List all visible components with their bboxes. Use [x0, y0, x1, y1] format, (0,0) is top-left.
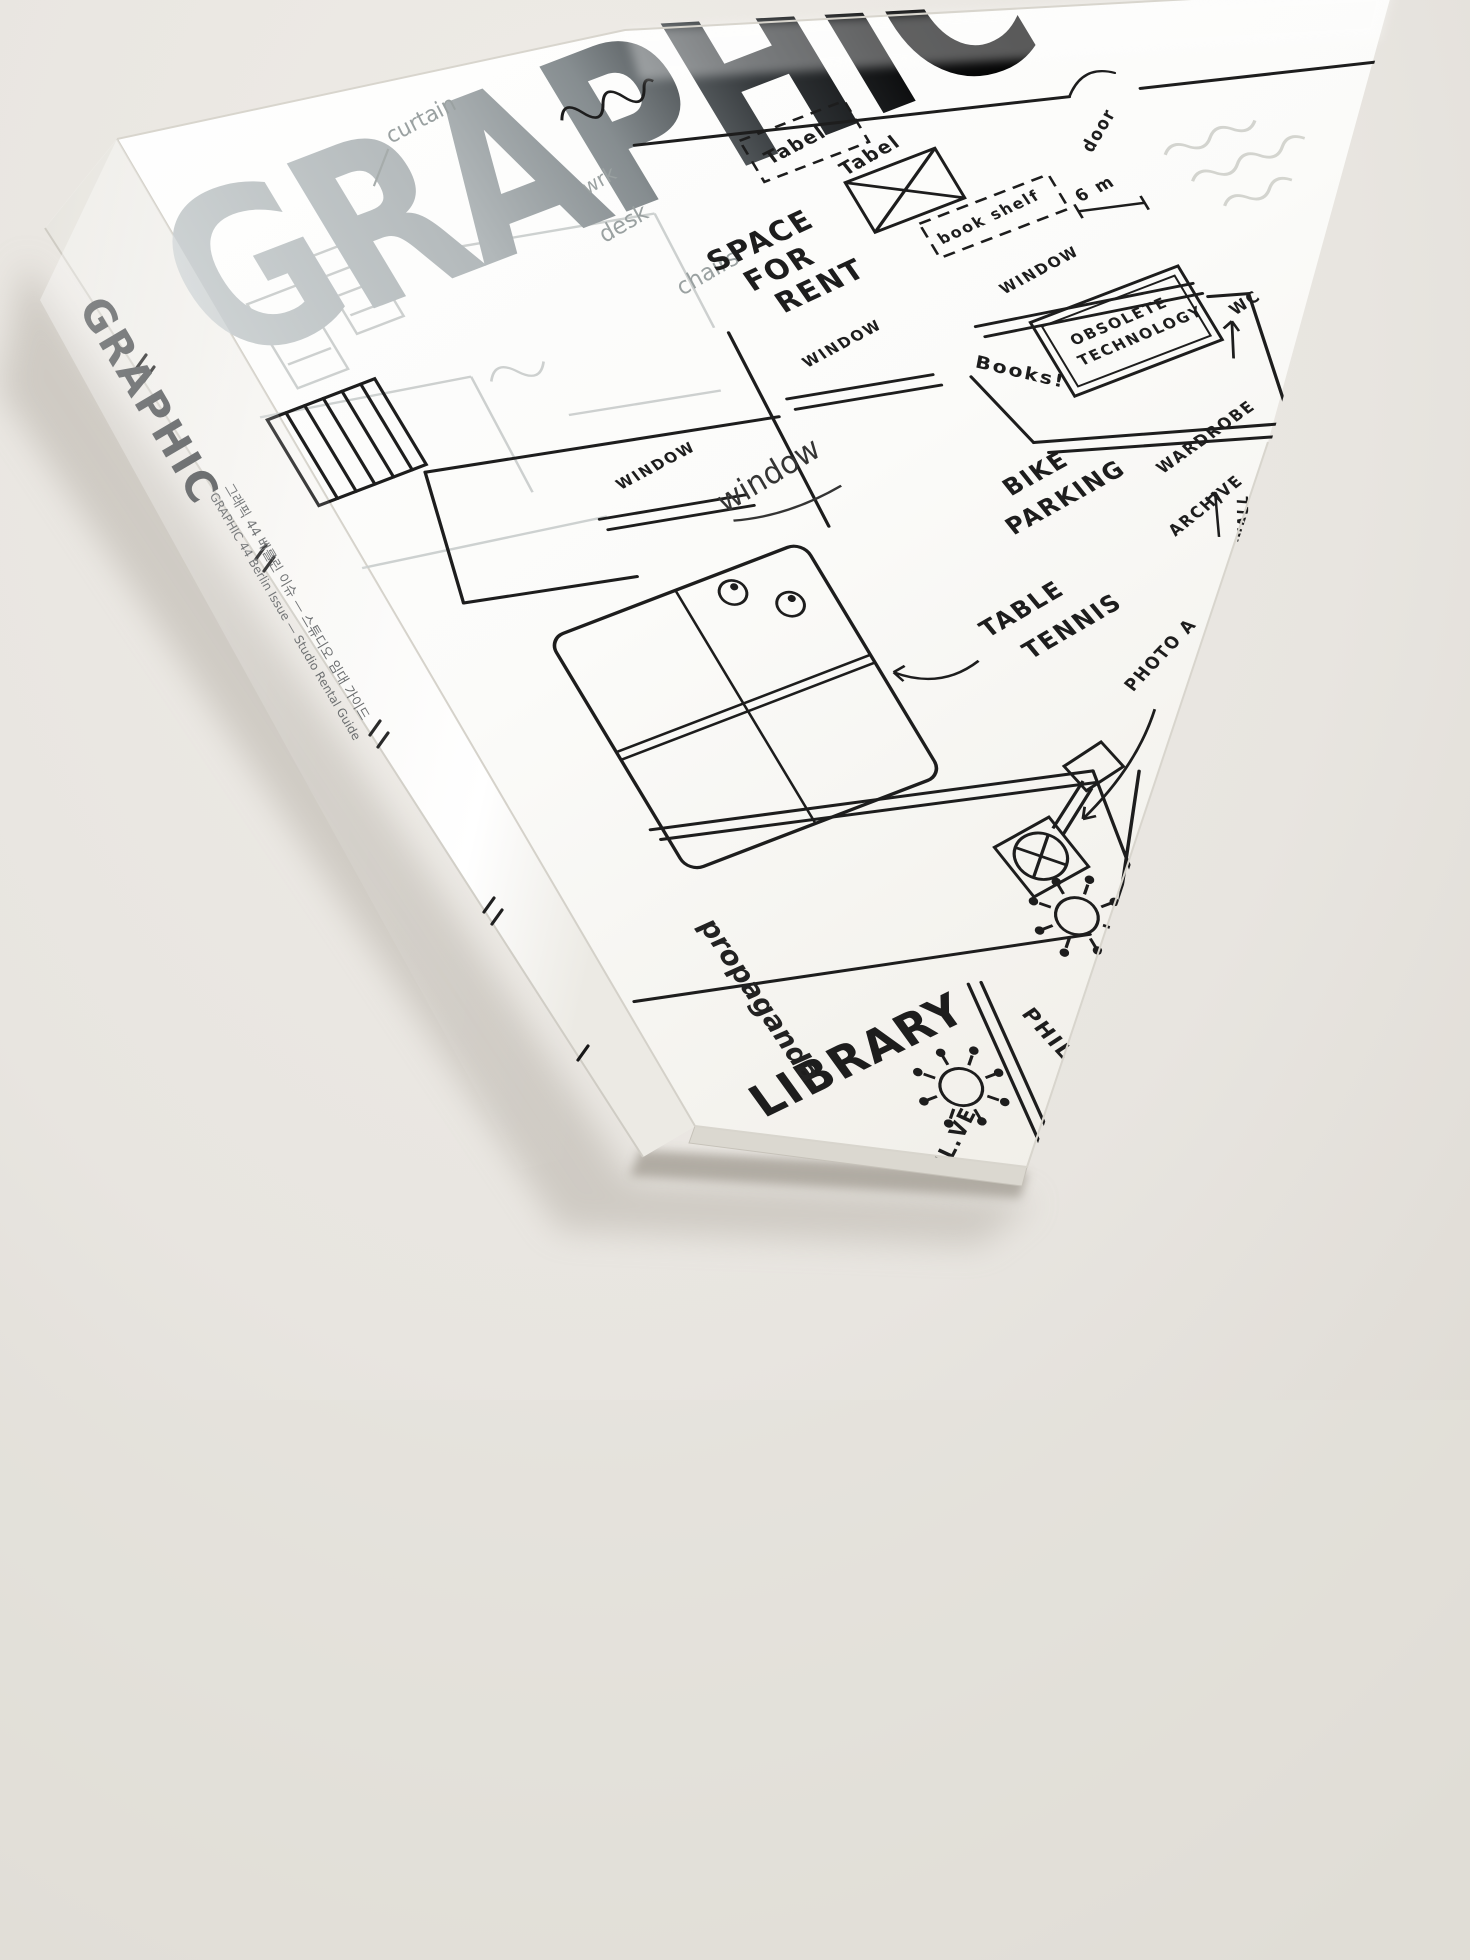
table-foreground: [0, 1400, 1470, 1960]
book-photo: GRAPHIC 그래픽 44 베를린 이슈 — 스튜디오 임대 가이드 GRAP…: [0, 0, 1470, 1960]
